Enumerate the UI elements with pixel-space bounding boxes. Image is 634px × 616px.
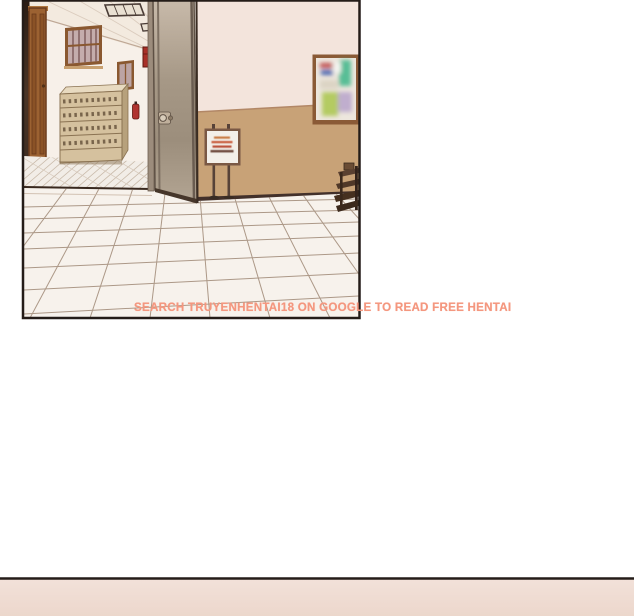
tiled-floor [0,185,510,318]
door-knob [42,84,45,87]
shoe-cabinet [60,84,128,165]
notice-board [313,55,359,125]
door-lock [159,112,173,124]
watermark-text: SEARCH TRUYENHENTAI18 ON GOOGLE TO READ … [134,301,511,314]
glass-door [148,0,198,204]
comic-panel-bottom [0,579,634,616]
fire-extinguisher [133,102,140,120]
ceiling-light [105,4,144,16]
comic-panel-top [0,0,510,318]
wooden-door [28,6,48,162]
hallway-window [64,25,103,69]
